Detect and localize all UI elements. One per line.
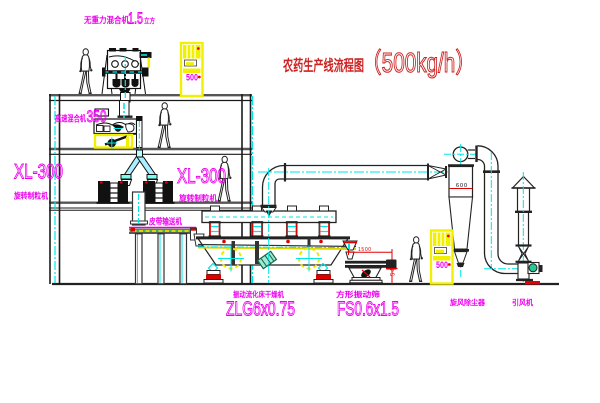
svg-text:皮带输送机: 皮带输送机 — [148, 217, 182, 227]
svg-text:立方: 立方 — [144, 16, 155, 25]
svg-text:1500: 1500 — [358, 247, 371, 253]
svg-text:高速混合机: 高速混合机 — [55, 114, 86, 124]
svg-text:旋转制粒机: 旋转制粒机 — [178, 193, 217, 203]
svg-text:方形振动筛: 方形振动筛 — [336, 289, 381, 299]
svg-text:无重力混合机: 无重力混合机 — [83, 15, 129, 25]
svg-text:（500kg/h）: （500kg/h） — [361, 47, 476, 78]
svg-text:农药生产线流程图: 农药生产线流程图 — [282, 57, 364, 75]
svg-text:XL-300: XL-300 — [14, 161, 63, 184]
svg-text:旋风除尘器: 旋风除尘器 — [449, 297, 485, 307]
svg-text:ZLG6x0.75: ZLG6x0.75 — [226, 299, 295, 321]
svg-text:振动流化床干燥机: 振动流化床干燥机 — [233, 289, 284, 299]
svg-text:XL-300: XL-300 — [177, 165, 226, 188]
svg-text:350: 350 — [87, 108, 107, 126]
svg-text:1.5: 1.5 — [128, 11, 143, 28]
svg-text:FS0.6x1.5: FS0.6x1.5 — [337, 299, 399, 321]
svg-text:引风机: 引风机 — [512, 297, 533, 307]
svg-text:旋转制粒机: 旋转制粒机 — [13, 191, 48, 201]
